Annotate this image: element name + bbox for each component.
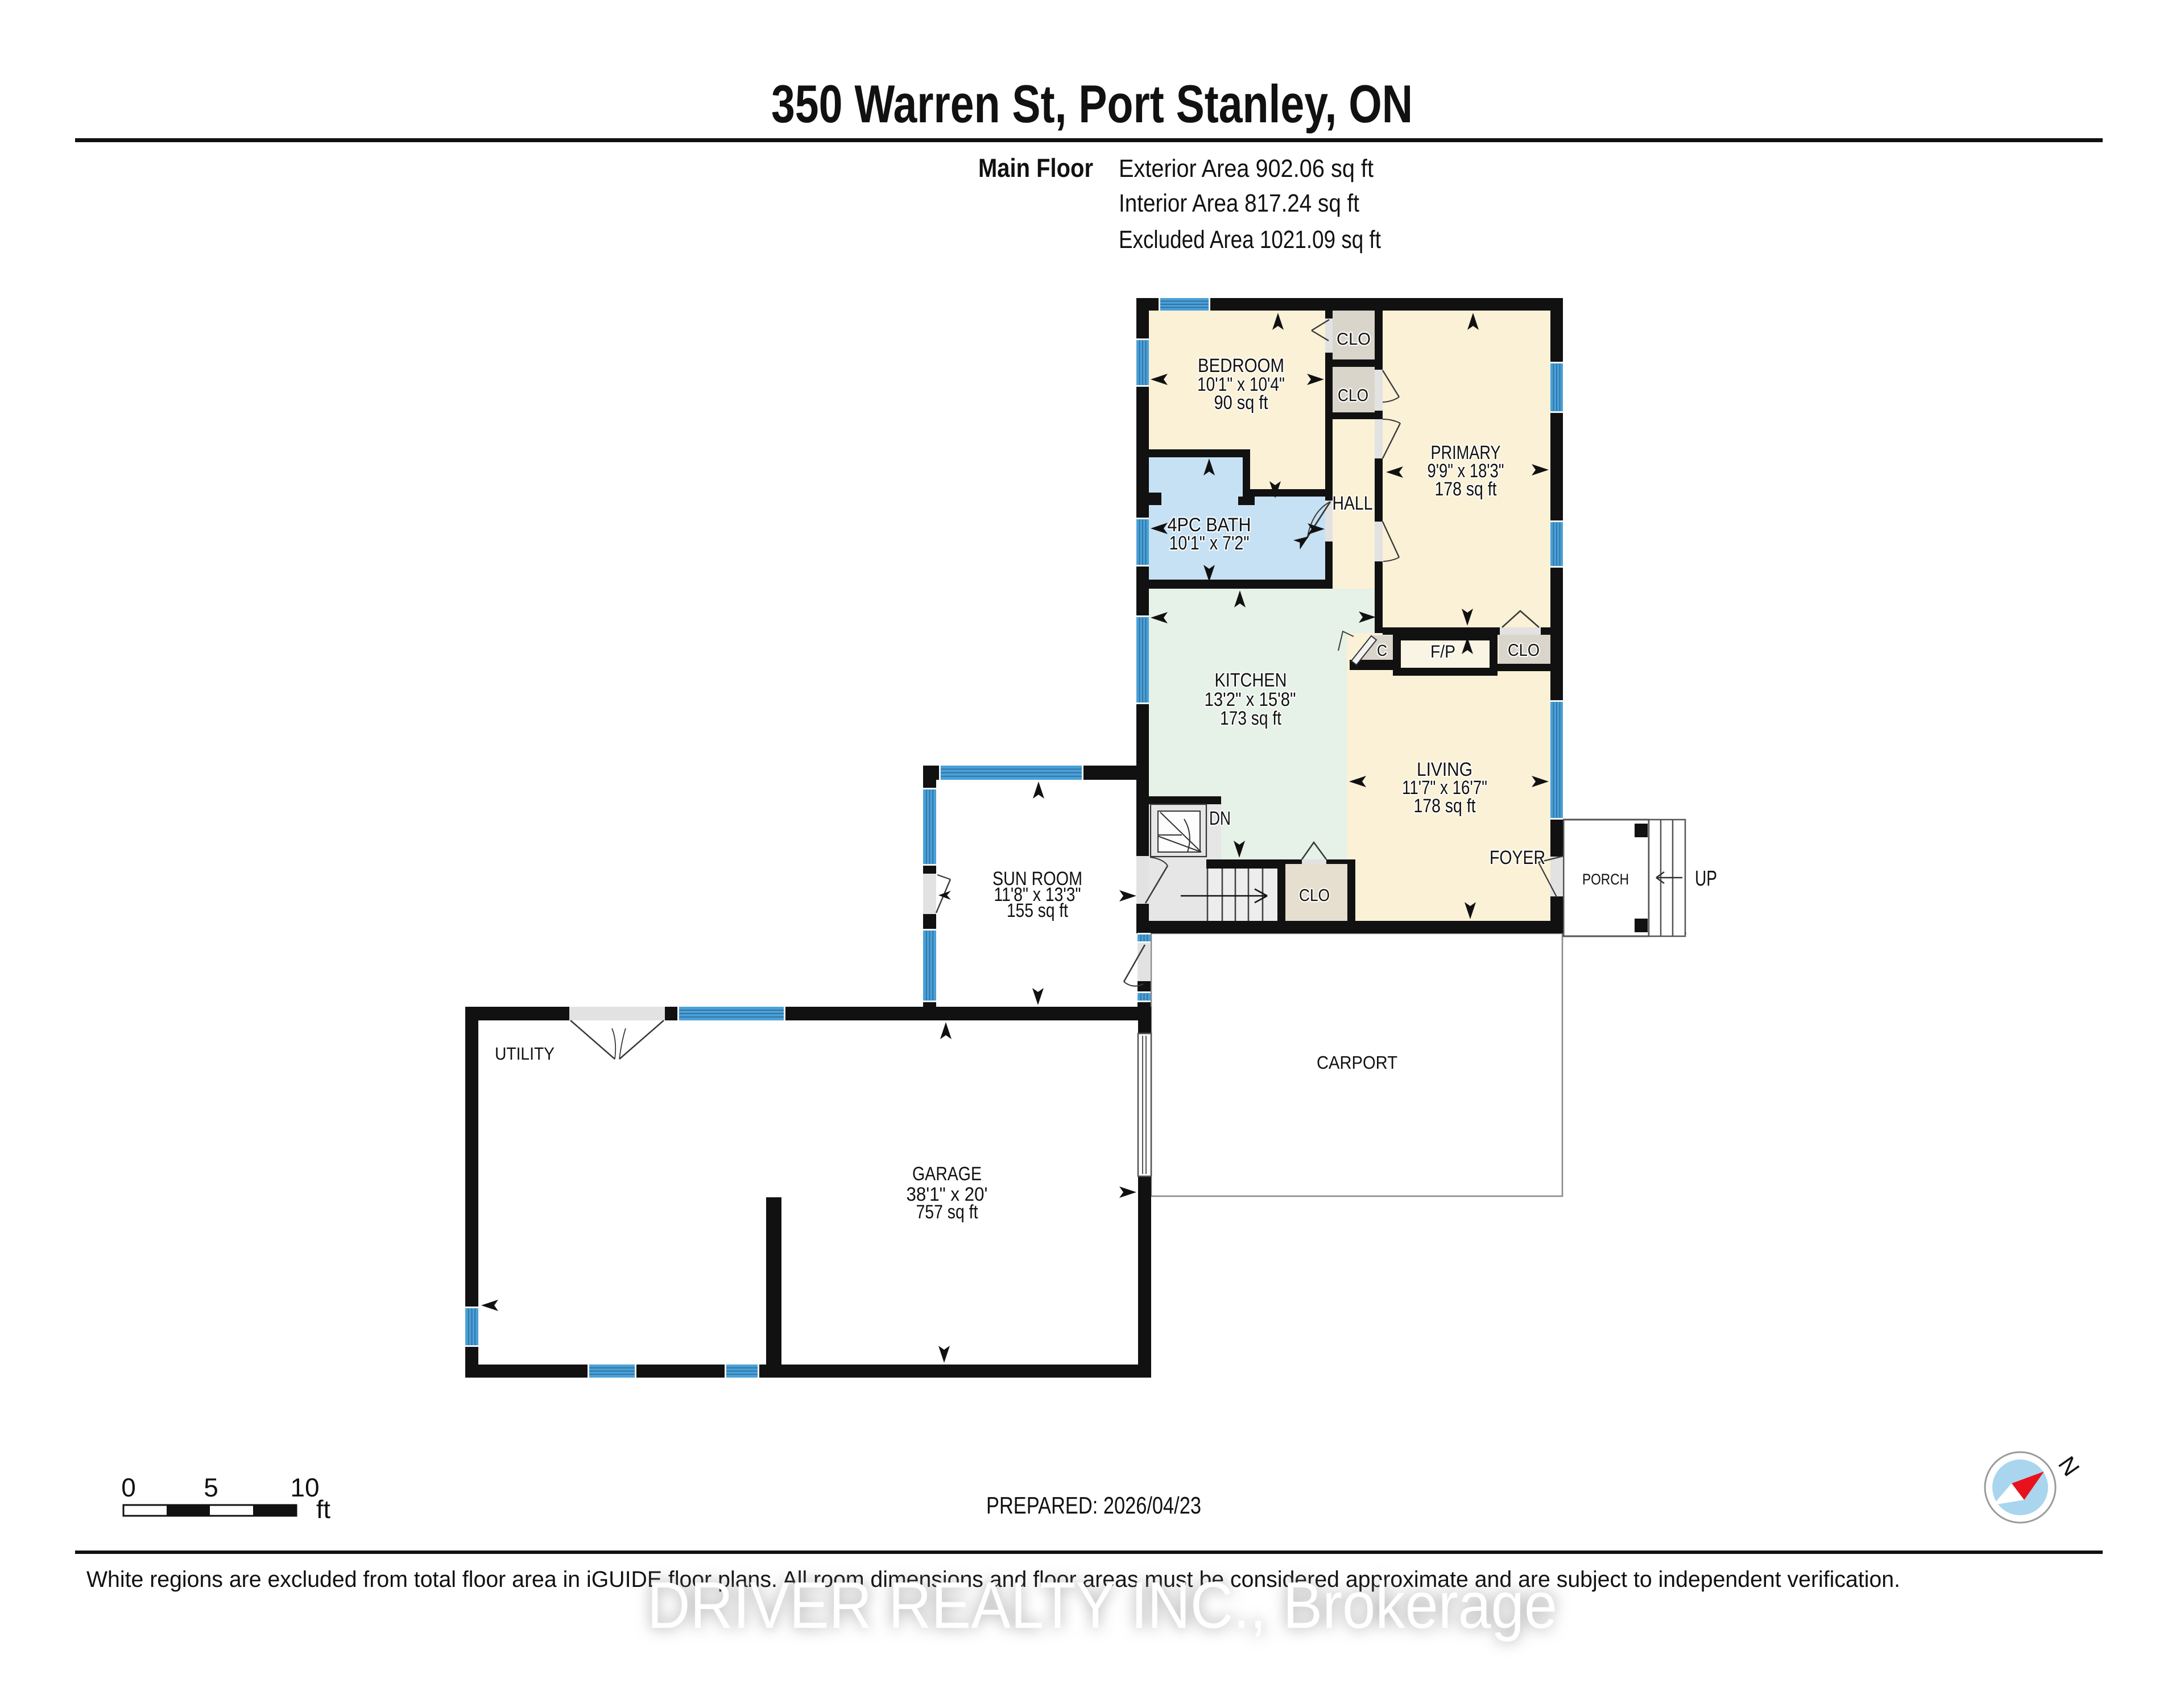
svg-text:F/P: F/P bbox=[1430, 642, 1455, 661]
svg-text:5: 5 bbox=[204, 1473, 218, 1502]
svg-text:KITCHEN: KITCHEN bbox=[1215, 669, 1287, 691]
svg-text:757 sq ft: 757 sq ft bbox=[916, 1201, 978, 1223]
svg-text:GARAGE: GARAGE bbox=[912, 1163, 982, 1185]
svg-text:DRIVER REALTY INC., Brokerage: DRIVER REALTY INC., Brokerage bbox=[647, 1568, 1557, 1642]
svg-text:0: 0 bbox=[121, 1473, 136, 1502]
svg-text:10: 10 bbox=[290, 1473, 319, 1502]
svg-text:PORCH: PORCH bbox=[1582, 871, 1629, 888]
svg-text:Exterior Area 902.06 sq ft: Exterior Area 902.06 sq ft bbox=[1119, 155, 1374, 183]
svg-text:ft: ft bbox=[316, 1495, 331, 1524]
svg-text:C: C bbox=[1377, 642, 1387, 659]
svg-text:178 sq ft: 178 sq ft bbox=[1414, 795, 1476, 817]
svg-text:FOYER: FOYER bbox=[1490, 847, 1545, 869]
svg-text:155 sq ft: 155 sq ft bbox=[1007, 900, 1068, 921]
svg-text:UTILITY: UTILITY bbox=[495, 1044, 555, 1064]
svg-text:178 sq ft: 178 sq ft bbox=[1435, 478, 1497, 500]
svg-text:173 sq ft: 173 sq ft bbox=[1220, 708, 1281, 729]
svg-text:Excluded Area 1021.09 sq ft: Excluded Area 1021.09 sq ft bbox=[1119, 226, 1381, 254]
svg-text:CLO: CLO bbox=[1337, 330, 1371, 349]
svg-text:Interior Area 817.24 sq ft: Interior Area 817.24 sq ft bbox=[1119, 189, 1359, 217]
svg-text:CLO: CLO bbox=[1338, 386, 1368, 405]
svg-text:350 Warren St, Port Stanley, O: 350 Warren St, Port Stanley, ON bbox=[771, 74, 1413, 134]
svg-text:CARPORT: CARPORT bbox=[1317, 1052, 1397, 1073]
svg-text:DN: DN bbox=[1209, 808, 1231, 829]
svg-text:PREPARED: 2026/04/23: PREPARED: 2026/04/23 bbox=[986, 1492, 1201, 1519]
svg-text:UP: UP bbox=[1695, 867, 1717, 891]
svg-text:90 sq ft: 90 sq ft bbox=[1214, 392, 1268, 414]
svg-text:HALL: HALL bbox=[1333, 493, 1373, 514]
svg-text:CLO: CLO bbox=[1299, 886, 1330, 905]
svg-text:CLO: CLO bbox=[1508, 641, 1540, 660]
svg-text:10'1" x 7'2": 10'1" x 7'2" bbox=[1169, 532, 1250, 554]
svg-text:Main Floor: Main Floor bbox=[978, 153, 1093, 183]
